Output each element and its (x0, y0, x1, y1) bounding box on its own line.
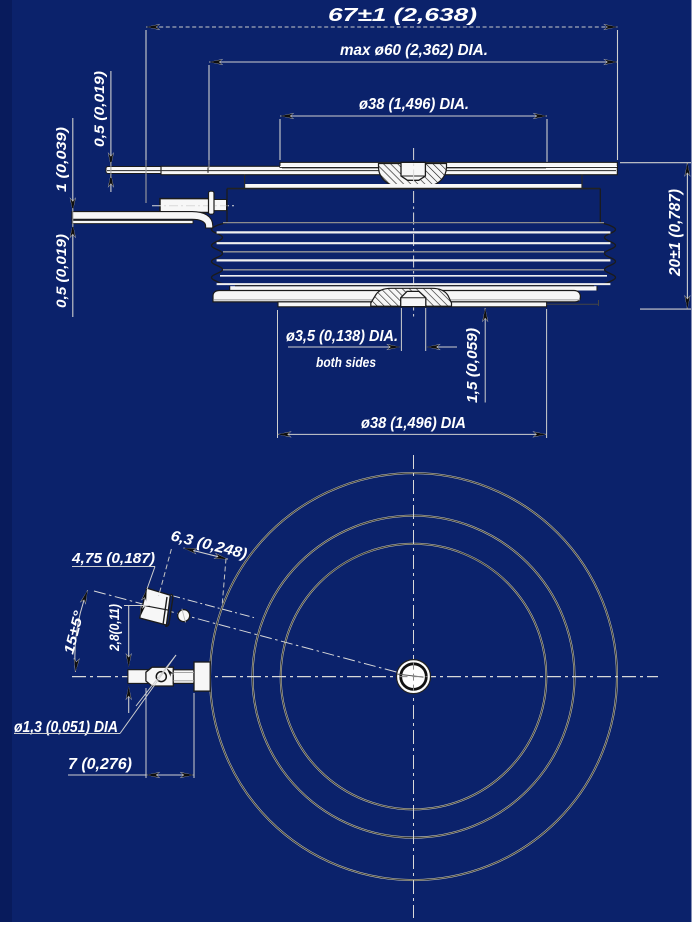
svg-text:1,5 (0,059): 1,5 (0,059) (464, 328, 481, 403)
svg-text:0,5 (0,019): 0,5 (0,019) (91, 71, 107, 147)
svg-text:ø3,5 (0,138) DIA.: ø3,5 (0,138) DIA. (286, 328, 398, 345)
svg-text:1 (0,039): 1 (0,039) (53, 127, 69, 192)
svg-text:ø38 (1,496) DIA.: ø38 (1,496) DIA. (359, 96, 469, 113)
svg-text:ø38 (1,496) DIA: ø38 (1,496) DIA (361, 415, 466, 432)
svg-text:max ø60 (2,362) DIA.: max ø60 (2,362) DIA. (340, 42, 488, 59)
svg-text:0,5 (0,019): 0,5 (0,019) (53, 234, 69, 308)
svg-text:67±1 (2,638): 67±1 (2,638) (328, 5, 477, 25)
svg-text:2,8(0,11): 2,8(0,11) (106, 604, 122, 652)
svg-text:20±1 (0,787): 20±1 (0,787) (667, 189, 684, 277)
svg-text:4,75 (0,187): 4,75 (0,187) (71, 550, 155, 567)
svg-text:7 (0,276): 7 (0,276) (68, 756, 132, 773)
svg-text:both sides: both sides (316, 354, 376, 370)
